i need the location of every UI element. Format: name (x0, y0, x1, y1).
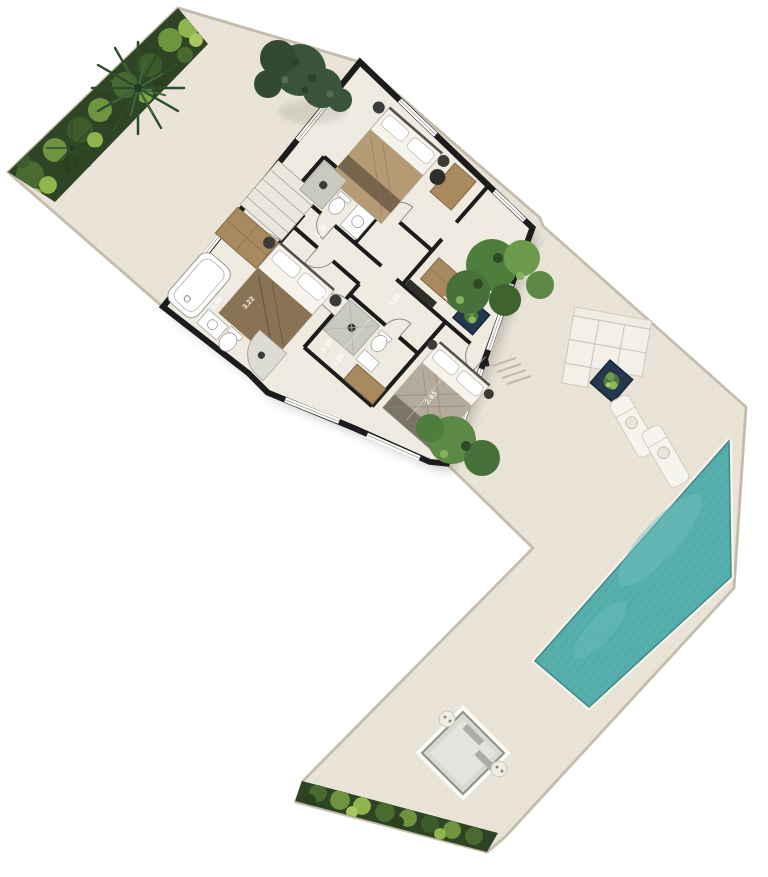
palm-tree-small (47, 123, 98, 174)
floor-plan-canvas: 2.06 3.22 1.20 2.31 1.50 1.80 4.10 1.10 … (0, 0, 768, 877)
deck-light (439, 711, 455, 727)
deck-light (491, 761, 507, 777)
floor-plan-page: 2.06 3.22 1.20 2.31 1.50 1.80 4.10 1.10 … (0, 0, 768, 877)
